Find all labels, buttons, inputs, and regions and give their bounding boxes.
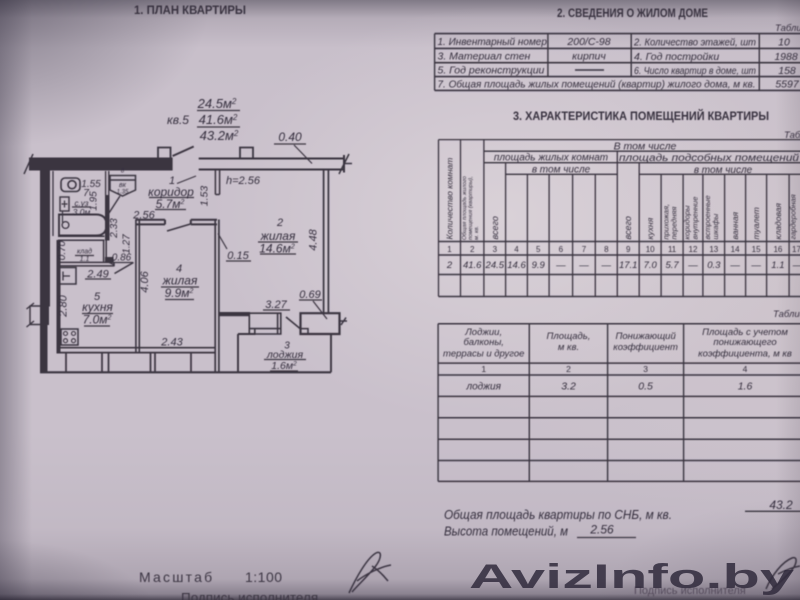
svg-text:1: 1: [481, 364, 486, 374]
svg-text:1.27: 1.27: [122, 234, 133, 254]
svg-text:коэффициент: коэффициент: [613, 342, 678, 353]
svg-text:Таблица: Таблица: [773, 309, 800, 320]
svg-text:м кв.: м кв.: [558, 342, 579, 353]
svg-text:7. Общая площадь жилых помещен: 7. Общая площадь жилых помещений (кварти…: [438, 79, 756, 91]
svg-text:0.3: 0.3: [707, 260, 721, 271]
svg-text:7: 7: [582, 245, 587, 254]
svg-text:Масштаб: Масштаб: [139, 569, 214, 585]
svg-text:Общая площадь квартиры по СНБ,: Общая площадь квартиры по СНБ, м кв.: [444, 508, 672, 522]
svg-text:террасы и другое: террасы и другое: [443, 349, 524, 360]
svg-text:2: 2: [446, 260, 453, 271]
svg-text:17.1: 17.1: [619, 260, 638, 271]
svg-text:9.9: 9.9: [532, 260, 546, 271]
svg-text:2.49: 2.49: [86, 269, 108, 281]
svg-text:—: —: [792, 260, 800, 271]
svg-text:43.2м2: 43.2м2: [200, 128, 239, 143]
svg-text:7.0м2: 7.0м2: [83, 313, 112, 327]
svg-text:лоджия: лоджия: [465, 382, 501, 393]
svg-text:м. кв.: м. кв.: [474, 226, 480, 240]
svg-text:4.48: 4.48: [308, 228, 320, 250]
svg-text:вк: вк: [119, 182, 127, 189]
svg-text:h=2.56: h=2.56: [226, 175, 261, 187]
svg-text:В том числе: В том числе: [614, 141, 677, 153]
svg-text:2.56: 2.56: [589, 523, 614, 537]
svg-text:1.95: 1.95: [89, 191, 100, 211]
svg-text:1.6м2: 1.6м2: [271, 360, 297, 372]
svg-text:9.9м2: 9.9м2: [165, 286, 194, 300]
svg-text:41.6м2: 41.6м2: [199, 112, 238, 127]
svg-text:0.40: 0.40: [278, 130, 302, 144]
svg-text:всего: всего: [490, 216, 500, 239]
svg-text:2.56: 2.56: [132, 210, 155, 222]
svg-text:клад: клад: [77, 248, 92, 256]
svg-text:11: 11: [668, 245, 677, 254]
svg-text:в том числе: в том числе: [694, 165, 753, 176]
svg-text:200/С-98: 200/С-98: [566, 36, 610, 48]
svg-text:2: 2: [470, 245, 475, 254]
svg-text:3. Материал стен: 3. Материал стен: [438, 51, 531, 63]
svg-text:6: 6: [559, 245, 564, 254]
svg-text:1: 1: [447, 245, 452, 254]
svg-text:8: 8: [604, 245, 609, 254]
svg-text:2: 2: [276, 217, 283, 229]
svg-text:2.43: 2.43: [160, 337, 183, 349]
svg-text:всего: всего: [623, 216, 633, 239]
svg-text:Площадь,: Площадь,: [547, 331, 591, 342]
svg-text:0.69: 0.69: [299, 289, 320, 301]
svg-text:5.7: 5.7: [665, 260, 679, 271]
svg-text:—: —: [578, 260, 589, 271]
svg-text:16: 16: [773, 245, 782, 254]
svg-text:2. СВЕДЕНИЯ О ЖИЛОМ ДОМЕ: 2. СВЕДЕНИЯ О ЖИЛОМ ДОМЕ: [557, 6, 708, 20]
svg-text:гардеробная: гардеробная: [789, 194, 798, 239]
svg-text:2.80: 2.80: [58, 294, 70, 317]
svg-text:AvizInfo.by: AvizInfo.by: [469, 558, 794, 596]
svg-text:балконы,: балконы,: [463, 337, 504, 348]
svg-text:10: 10: [778, 37, 790, 49]
svg-text:14.6: 14.6: [507, 260, 526, 271]
svg-text:4: 4: [743, 364, 748, 374]
svg-text:—: —: [729, 260, 740, 271]
svg-text:1.6: 1.6: [738, 381, 753, 393]
svg-text:шкафы: шкафы: [711, 213, 720, 239]
svg-text:0.5: 0.5: [638, 381, 653, 393]
svg-text:—: —: [687, 260, 698, 271]
svg-text:площадь жилых комнат: площадь жилых комнат: [494, 153, 608, 164]
svg-text:2. Количество этажей, шт: 2. Количество этажей, шт: [633, 37, 756, 49]
svg-text:—: —: [555, 260, 566, 271]
svg-text:кладовая: кладовая: [773, 203, 783, 240]
svg-text:Высота помещений, м: Высота помещений, м: [444, 525, 568, 539]
svg-text:Таблица: Таблица: [775, 23, 800, 34]
svg-text:41.6: 41.6: [463, 260, 482, 271]
svg-text:1. ПЛАН КВАРТИРЫ: 1. ПЛАН КВАРТИРЫ: [134, 3, 246, 17]
svg-text:2: 2: [566, 364, 571, 374]
svg-text:внутренние: внутренние: [690, 197, 699, 240]
svg-text:понижающего: понижающего: [713, 337, 776, 348]
svg-text:0.86: 0.86: [112, 253, 132, 264]
svg-text:1.35: 1.35: [117, 190, 129, 196]
svg-text:12: 12: [689, 245, 698, 254]
svg-text:площадь подсобных помещений: площадь подсобных помещений: [619, 152, 800, 164]
svg-text:14: 14: [731, 245, 740, 254]
svg-text:кв.5: кв.5: [167, 113, 189, 127]
svg-text:кухня: кухня: [645, 217, 655, 239]
svg-text:туалет: туалет: [751, 207, 761, 239]
svg-text:5. Год реконструкции: 5. Год реконструкции: [438, 65, 545, 77]
svg-text:—: —: [601, 260, 612, 271]
svg-text:5: 5: [536, 245, 541, 254]
svg-text:1.1: 1.1: [771, 260, 784, 271]
svg-text:5.7м2: 5.7м2: [156, 197, 185, 211]
svg-text:Понижающий: Понижающий: [615, 331, 676, 342]
svg-text:0.70: 0.70: [57, 240, 68, 260]
svg-text:Количество комнат: Количество комнат: [445, 158, 455, 240]
svg-text:1. Инвентарный номер: 1. Инвентарный номер: [438, 37, 548, 48]
svg-text:9: 9: [626, 245, 631, 254]
svg-text:24.5м2: 24.5м2: [197, 96, 237, 111]
svg-text:4: 4: [514, 245, 519, 254]
svg-text:Подпись исполнителя: Подпись исполнителя: [181, 591, 318, 600]
svg-text:1:100: 1:100: [245, 569, 283, 585]
svg-text:13: 13: [709, 245, 718, 254]
svg-text:1988: 1988: [774, 51, 798, 63]
svg-text:3: 3: [643, 364, 648, 374]
svg-text:14.6м2: 14.6м2: [259, 242, 295, 256]
svg-text:1.1: 1.1: [80, 256, 90, 263]
svg-text:15: 15: [752, 245, 761, 254]
svg-text:3.27: 3.27: [265, 299, 287, 311]
svg-text:3.2: 3.2: [561, 381, 576, 393]
svg-text:ванная: ванная: [730, 211, 740, 239]
svg-text:158: 158: [778, 65, 796, 77]
svg-text:6. Число квартир в доме, шт: 6. Число квартир в доме, шт: [634, 66, 756, 77]
svg-text:коэффициента, м кв: коэффициента, м кв: [698, 349, 792, 360]
svg-text:2.33: 2.33: [109, 218, 120, 239]
svg-text:7.0: 7.0: [644, 260, 658, 271]
svg-text:в том числе: в том числе: [532, 164, 591, 175]
svg-text:передняя: передняя: [669, 207, 678, 240]
svg-text:кирпич: кирпич: [572, 51, 606, 63]
svg-text:0.15: 0.15: [227, 250, 249, 262]
svg-text:5597: 5597: [775, 79, 800, 91]
svg-text:10: 10: [646, 245, 655, 254]
svg-text:4. Год постройки: 4. Год постройки: [634, 51, 719, 63]
svg-text:3. ХАРАКТЕРИСТИКА ПОМЕЩЕНИЙ КВ: 3. ХАРАКТЕРИСТИКА ПОМЕЩЕНИЙ КВАРТИРЫ: [513, 108, 769, 123]
svg-text:4.06: 4.06: [139, 270, 151, 292]
svg-text:43.2: 43.2: [769, 498, 793, 512]
svg-text:1.53: 1.53: [199, 186, 211, 207]
svg-text:3: 3: [493, 245, 498, 254]
svg-text:—: —: [750, 260, 761, 271]
svg-text:24.5: 24.5: [485, 260, 505, 271]
svg-text:17: 17: [792, 245, 800, 254]
